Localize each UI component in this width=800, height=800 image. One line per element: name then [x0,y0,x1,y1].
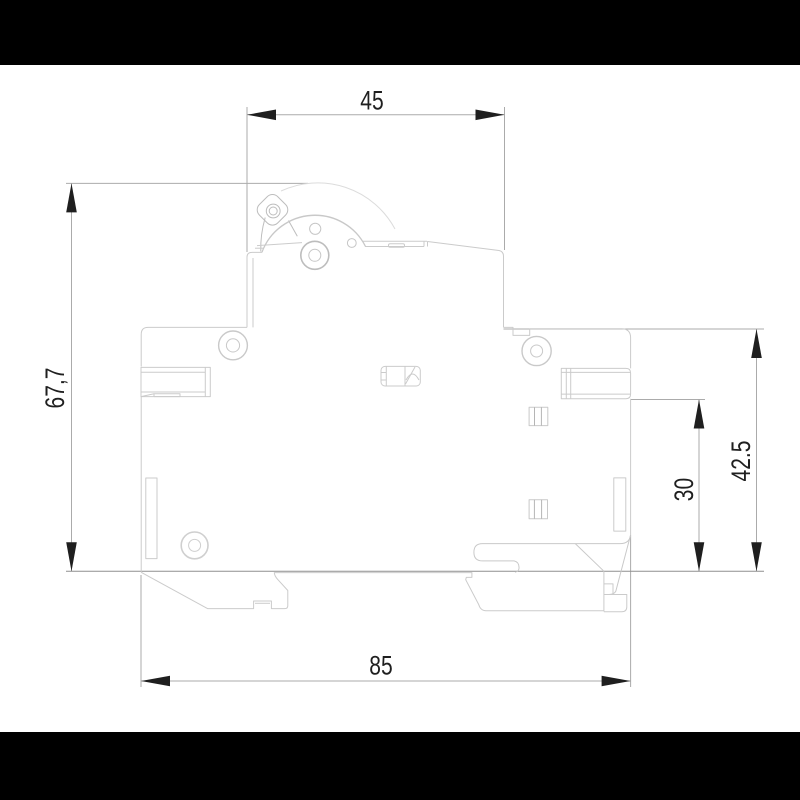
svg-text:85: 85 [369,651,392,681]
svg-text:67,7: 67,7 [41,368,71,409]
svg-text:30: 30 [670,478,700,501]
svg-text:42.5: 42.5 [727,441,757,482]
svg-text:45: 45 [360,86,383,116]
